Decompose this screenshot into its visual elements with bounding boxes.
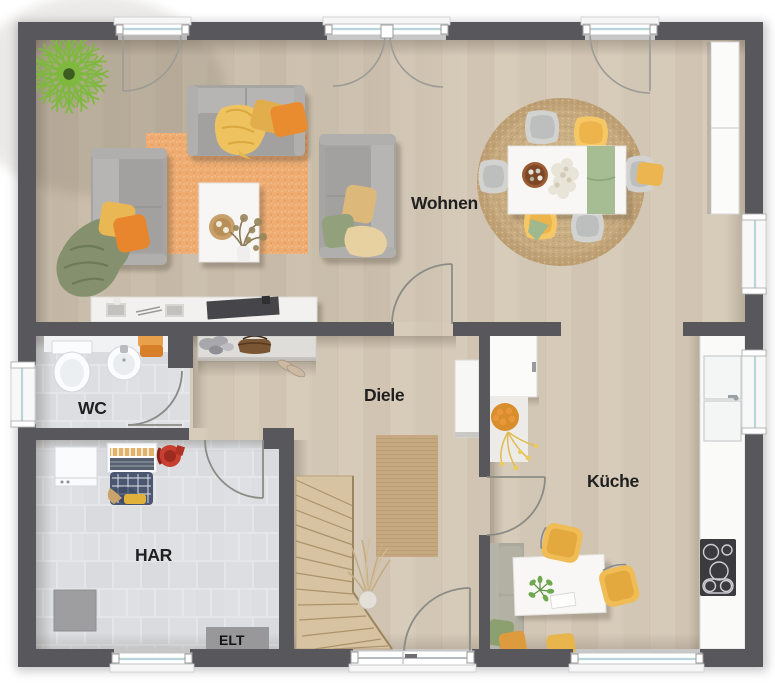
svg-text:HAR: HAR (135, 545, 173, 565)
svg-text:Wohnen: Wohnen (411, 193, 478, 213)
svg-text:ELT: ELT (219, 632, 245, 648)
svg-text:Diele: Diele (364, 385, 405, 405)
svg-text:WC: WC (78, 398, 107, 418)
svg-text:Küche: Küche (587, 471, 640, 491)
